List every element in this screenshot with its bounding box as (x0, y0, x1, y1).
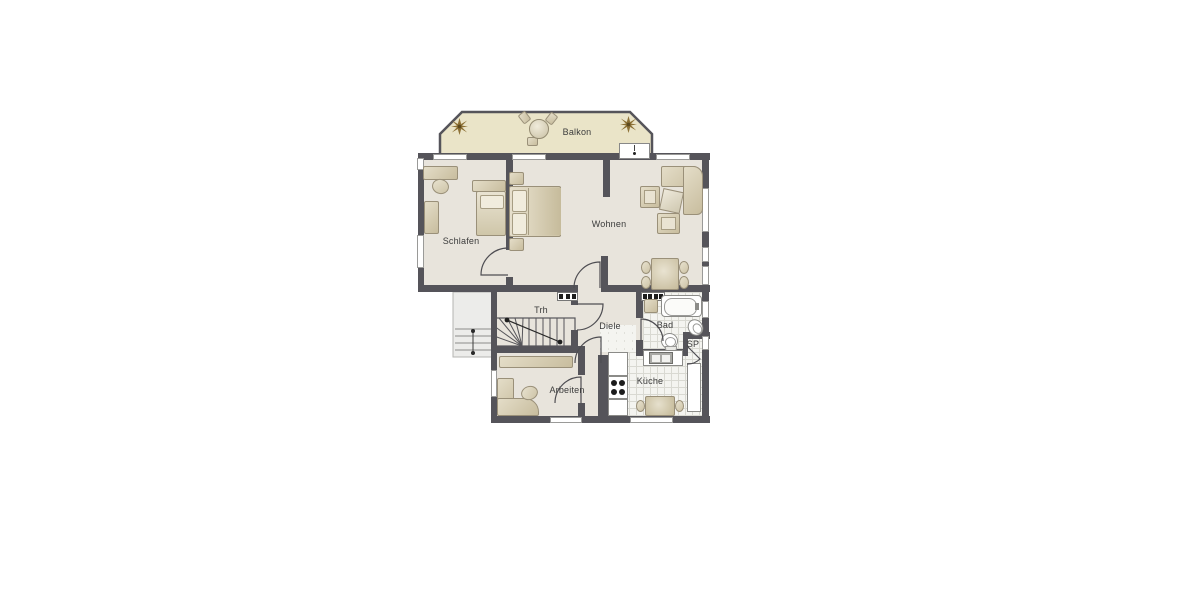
room-label-sp: SP (687, 339, 699, 349)
room-label-arbeiten: Arbeiten (549, 385, 584, 395)
floorplan-page: Balkon Schlafen Wohnen Trh Diele Bad SP … (0, 0, 1200, 600)
room-label-diele: Diele (599, 321, 621, 331)
room-label-bad: Bad (657, 320, 674, 330)
room-label-trh: Trh (534, 305, 548, 315)
room-label-kueche: Küche (637, 376, 664, 386)
door-schlafen (481, 248, 508, 275)
floor-plan: Balkon Schlafen Wohnen Trh Diele Bad SP … (0, 0, 1200, 600)
room-label-wohnen: Wohnen (592, 219, 627, 229)
door-kueche (575, 337, 601, 363)
room-label-balkon: Balkon (563, 127, 592, 137)
room-label-schlafen: Schlafen (443, 236, 480, 246)
door-wohnen (574, 262, 600, 288)
